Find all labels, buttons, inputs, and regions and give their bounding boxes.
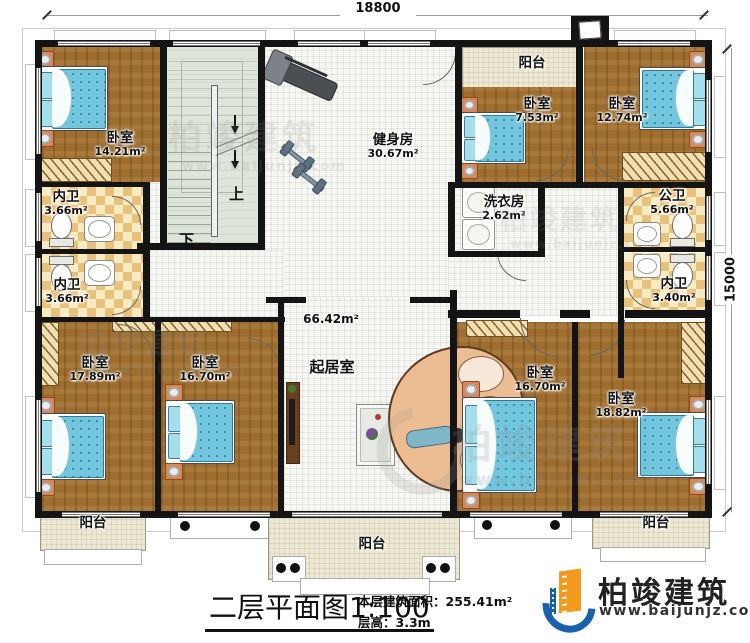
- room-label-living-area: 66.42m²: [281, 313, 381, 326]
- room-label-living: 起居室: [282, 359, 382, 376]
- chimney-flue: [578, 20, 601, 39]
- window: [36, 68, 41, 154]
- window: [470, 512, 562, 517]
- balcony-door: [292, 512, 442, 517]
- wall-bedrooms-br-top-3: [625, 310, 712, 318]
- room-label-bath-public: 公卫5.66m²: [627, 189, 717, 216]
- room-label-bath-left-1: 内卫3.66m²: [26, 190, 106, 217]
- nightstand: [462, 492, 480, 509]
- wall-br2-entry-stub: [618, 316, 624, 378]
- room-label-balcony-bc: 阳台: [332, 537, 412, 552]
- wall-living-left: [278, 322, 284, 511]
- column-dot: [180, 521, 190, 531]
- wall-stair-right: [258, 47, 265, 250]
- column-dot: [440, 563, 450, 573]
- sink: [633, 254, 661, 278]
- stair-rail: [211, 85, 218, 237]
- washing-machine: [462, 219, 495, 250]
- wall-bedrooms-br-top-1: [448, 310, 520, 318]
- logo-pillar-icon: [550, 588, 556, 614]
- room-label-bedroom-tl: 卧室14.21m²: [70, 131, 170, 158]
- closet: [40, 158, 112, 182]
- room-label-balcony-bl: 阳台: [53, 516, 133, 531]
- room-label-gym: 健身房30.67m²: [333, 133, 453, 160]
- nightstand: [461, 163, 478, 179]
- column-dot: [290, 563, 300, 573]
- bed: [462, 397, 537, 493]
- wall-bath-left-top: [35, 182, 150, 187]
- floor-height-line: 层高：3.3m: [358, 612, 431, 631]
- wall-living-right: [450, 322, 457, 511]
- closet: [681, 322, 707, 384]
- bed: [637, 412, 708, 478]
- window: [58, 41, 150, 46]
- toilet-tank: [670, 238, 695, 247]
- window: [178, 512, 270, 517]
- brand-website: www.baijunjz.com: [599, 603, 750, 619]
- window: [173, 41, 260, 46]
- floor-area-line: 本层建筑面积：255.41m²: [358, 591, 512, 610]
- wall-bl-divider: [155, 322, 161, 511]
- nightstand: [165, 463, 183, 480]
- nightstand: [461, 97, 478, 113]
- column-dot: [276, 563, 286, 573]
- sink: [84, 216, 115, 242]
- stair-up-label: 上: [229, 183, 244, 204]
- logo-building-icon: [559, 568, 581, 613]
- window: [706, 80, 711, 152]
- wall-tr-left: [455, 47, 462, 187]
- wall-living-tl-stub-h: [266, 297, 306, 303]
- wall-bath-public-left: [618, 188, 624, 316]
- nightstand: [462, 381, 480, 398]
- table-flower: [375, 414, 381, 420]
- wall-stair-bottom: [137, 243, 265, 250]
- window: [368, 41, 430, 46]
- room-label-balcony-top: 阳台: [492, 56, 572, 71]
- dimension-width: 18800: [340, 1, 416, 16]
- room-label-bath-left-2: 内卫3.66m²: [27, 278, 107, 305]
- brand-logo-icon: [543, 566, 593, 624]
- room-label-laundry: 洗衣房2.62m²: [454, 195, 554, 222]
- wall-bath-left-mid: [35, 249, 150, 254]
- window-sill: [714, 396, 726, 490]
- wall-bath-divider-right: [618, 247, 712, 252]
- bed: [165, 400, 235, 464]
- window: [298, 41, 360, 46]
- window-sill: [714, 76, 726, 158]
- sink: [633, 222, 661, 246]
- dimension-height: 15000: [724, 255, 739, 305]
- column-dot: [426, 563, 436, 573]
- plan-title-text: 二层平面图: [209, 591, 349, 624]
- wall-laundry-bottom: [448, 251, 545, 257]
- window: [706, 400, 711, 484]
- stair-down-label: 下: [179, 229, 194, 250]
- column-dot: [250, 521, 260, 531]
- room-label-bedroom-br1: 卧室16.70m²: [490, 366, 590, 393]
- room-label-bedroom-bl1: 卧室17.89m²: [45, 356, 145, 383]
- toilet-tank: [49, 238, 74, 247]
- bed: [37, 66, 108, 131]
- closet: [622, 152, 706, 181]
- column-dot: [482, 520, 492, 530]
- balcony-rim: [44, 549, 142, 565]
- wall-bedrooms-br-top-2: [560, 310, 590, 318]
- floor-hall-understairs: [150, 250, 284, 317]
- wall-living-right-upper: [450, 290, 457, 322]
- room-label-bath-right: 内卫3.40m²: [629, 277, 719, 304]
- window: [36, 400, 41, 492]
- nightstand: [165, 384, 183, 401]
- room-label-bedroom-tr2: 卧室12.74m²: [572, 97, 672, 124]
- balcony-rim: [600, 547, 706, 562]
- column-dot: [550, 520, 560, 530]
- room-label-balcony-br: 阳台: [616, 516, 696, 531]
- table-plant: [366, 428, 378, 440]
- floorplan-page: { "dimensions": { "width_label": "18800"…: [0, 0, 750, 635]
- room-label-bedroom-br2: 卧室18.82m²: [571, 392, 671, 419]
- closet: [466, 320, 528, 337]
- window: [618, 41, 690, 46]
- tv: [289, 399, 295, 445]
- room-label-bedroom-bl2: 卧室16.70m²: [155, 356, 255, 383]
- bed: [37, 413, 106, 480]
- plant: [288, 385, 296, 393]
